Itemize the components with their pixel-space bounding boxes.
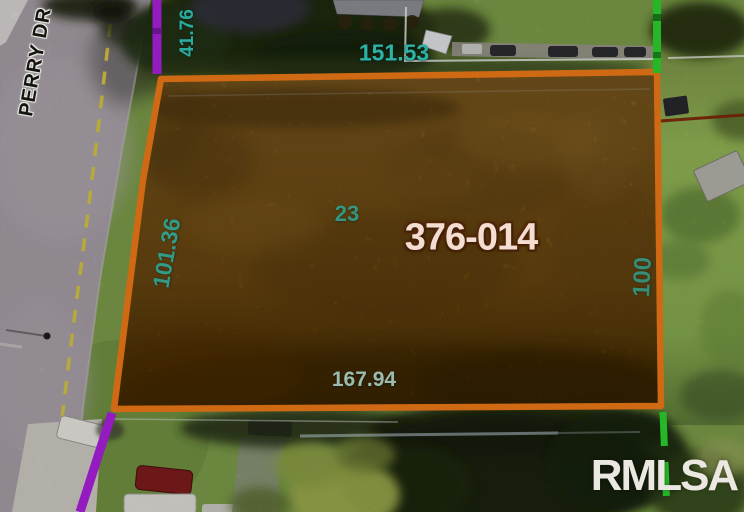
aerial-parcel-map: PERRY DR 41.76 151.53 101.36 23 376-014 … bbox=[0, 0, 744, 512]
dimension-left-upper: 41.76 bbox=[177, 9, 199, 57]
dimension-bottom: 167.94 bbox=[332, 368, 396, 392]
dimension-right: 100 bbox=[628, 256, 658, 297]
dimension-top: 151.53 bbox=[359, 40, 429, 67]
watermark-rmlsa: RMLSA bbox=[591, 451, 737, 501]
lot-number-label: 23 bbox=[335, 201, 359, 227]
parcel-id-label: 376-014 bbox=[405, 217, 537, 260]
